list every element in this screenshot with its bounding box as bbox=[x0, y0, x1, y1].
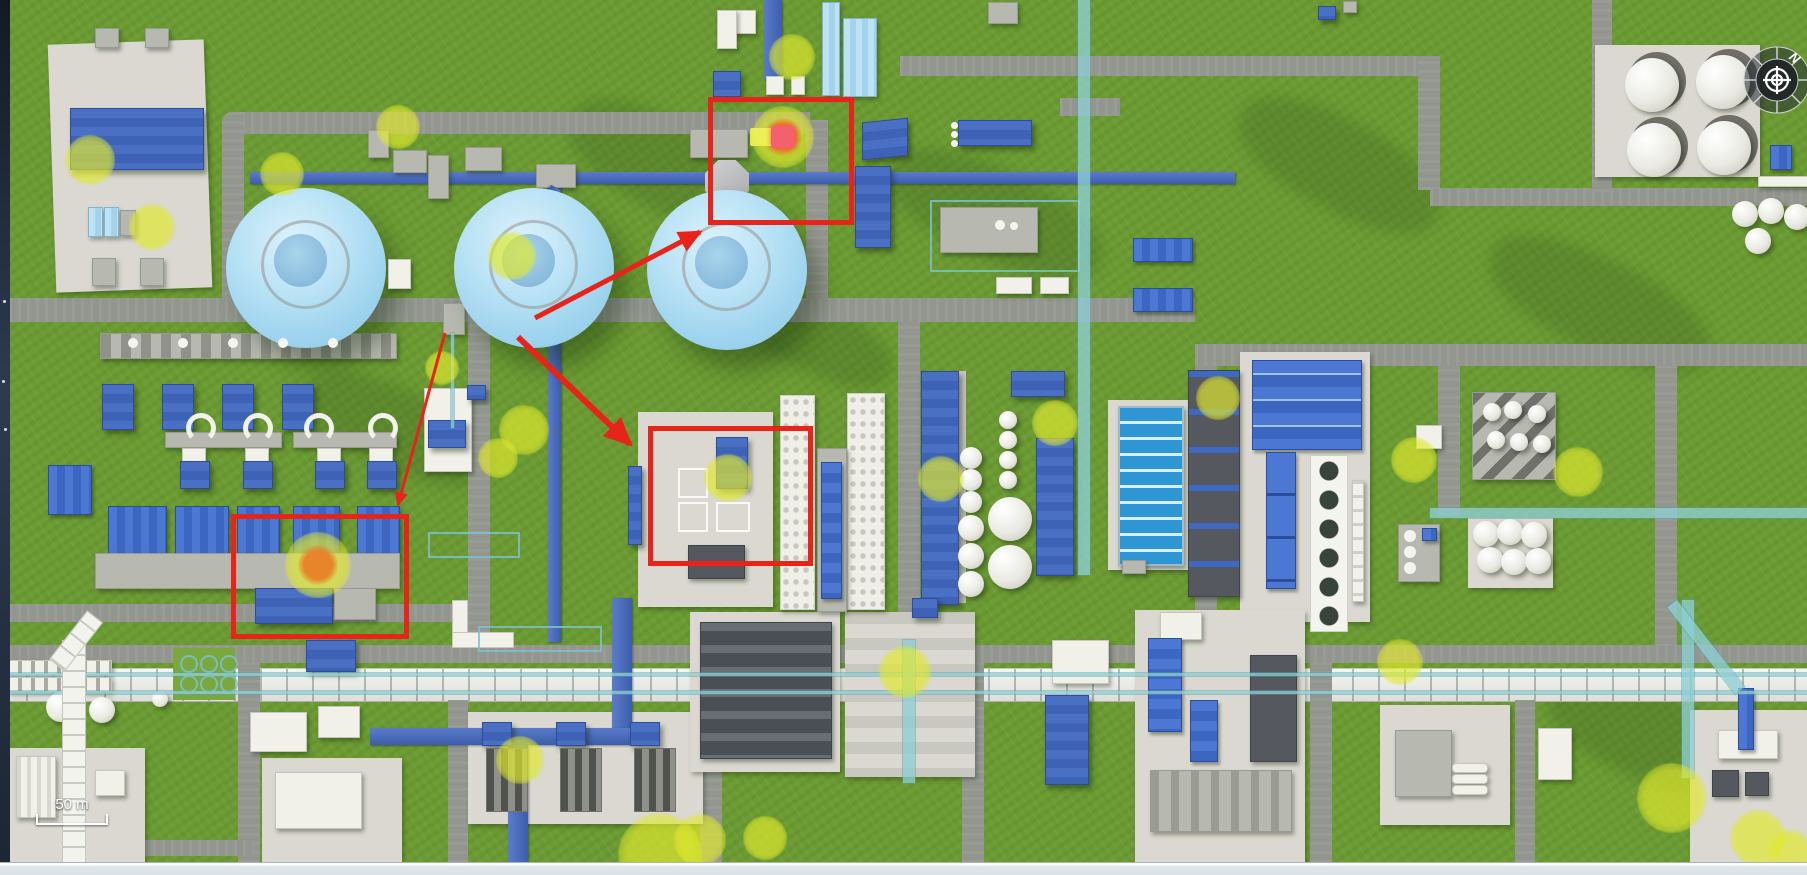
plant-map-viewport[interactable]: N 50 m bbox=[0, 0, 1807, 875]
highlight-marker[interactable] bbox=[674, 814, 726, 866]
highlight-marker[interactable] bbox=[260, 152, 304, 196]
compass-widget[interactable]: N bbox=[1741, 44, 1807, 116]
highlight-marker[interactable] bbox=[743, 816, 787, 860]
highlight-marker[interactable] bbox=[129, 204, 175, 250]
highlight-marker[interactable] bbox=[1637, 763, 1707, 833]
highlight-marker[interactable] bbox=[65, 135, 115, 185]
highlight-marker[interactable] bbox=[478, 438, 518, 478]
highlight-marker[interactable] bbox=[1032, 400, 1078, 446]
hotspot-core bbox=[771, 126, 795, 147]
highlight-marker[interactable] bbox=[704, 454, 752, 502]
highlight-marker[interactable] bbox=[496, 736, 544, 784]
highlight-marker[interactable] bbox=[879, 646, 931, 698]
highlight-marker[interactable] bbox=[1553, 447, 1603, 497]
marker-overlay bbox=[0, 0, 1807, 875]
highlight-marker[interactable] bbox=[918, 456, 964, 502]
map-scale: 50 m bbox=[36, 796, 108, 825]
highlight-marker[interactable] bbox=[1196, 376, 1240, 420]
highlight-marker[interactable] bbox=[425, 351, 459, 385]
scale-label: 50 m bbox=[36, 796, 108, 813]
bottom-window-bar[interactable] bbox=[0, 862, 1807, 875]
scale-bar bbox=[36, 814, 108, 825]
highlight-marker[interactable] bbox=[488, 232, 536, 280]
highlight-marker[interactable] bbox=[1391, 437, 1437, 483]
highlight-marker[interactable] bbox=[769, 34, 815, 80]
left-window-edge bbox=[0, 0, 10, 863]
highlight-marker[interactable] bbox=[1377, 639, 1423, 685]
highlight-marker[interactable] bbox=[376, 105, 420, 149]
